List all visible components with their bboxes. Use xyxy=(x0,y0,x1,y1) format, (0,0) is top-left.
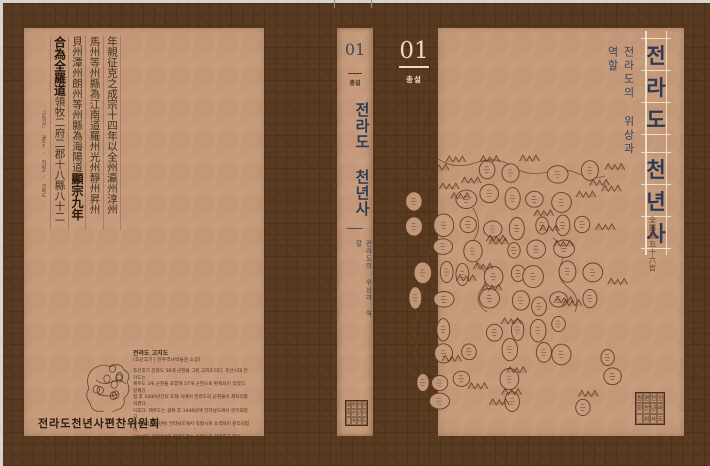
fold-mark xyxy=(371,0,372,8)
seal-char: 편 xyxy=(643,393,650,403)
front-subtitle: 전라도의 위상과 역할 xyxy=(612,46,636,182)
calligraphy-column: 合為全羅道領牧二府二郡十八縣八十二 xyxy=(50,36,68,230)
spine-volume-label: 총설 xyxy=(337,78,373,87)
seal-char: 년 xyxy=(650,403,657,413)
seal-char: 원 xyxy=(346,401,351,409)
seal-char: 라 xyxy=(657,403,664,413)
seal-char: 년 xyxy=(357,409,362,417)
seal-char: 전 xyxy=(657,393,664,403)
seal-char: 천 xyxy=(357,401,362,409)
seal-char: 원 xyxy=(636,393,643,403)
seal-char: 전 xyxy=(362,401,367,409)
spine-title: 전라도 천년사 xyxy=(337,94,373,224)
calligraphy-column: 馬州等州縣為江南道羅州光州靜州昇州 xyxy=(85,36,103,230)
committee-seal: 전라도천년사편찬위원회 xyxy=(635,392,665,425)
seal-char: 위 xyxy=(351,417,356,425)
fold-mark xyxy=(334,0,335,8)
seal-char: 회 xyxy=(346,409,351,417)
seal-char: 위 xyxy=(643,414,650,424)
antique-map-illustration xyxy=(403,148,650,435)
seal-char: 도 xyxy=(362,417,367,425)
ladder-rail-left xyxy=(645,31,647,255)
volume-block: 01 총설 xyxy=(396,38,432,85)
seal-char: 라 xyxy=(362,409,367,417)
seal-char xyxy=(346,417,351,425)
seal-char: 사 xyxy=(650,414,657,424)
seal-char: 찬 xyxy=(351,409,356,417)
seal-char: 회 xyxy=(636,403,643,413)
committee-seal-small: 전라도천년사편찬위원회 xyxy=(345,400,368,426)
volume-label: 총설 xyxy=(396,74,432,85)
spine-volume-number: 01 xyxy=(337,40,373,59)
seal-char: 편 xyxy=(351,401,356,409)
scan-edge-left xyxy=(0,0,3,466)
book-jacket-spread: 年親征克之成宗十四年以全州瀛州淳州馬州等州縣為江南道羅州光州靜州昇州貝州潭州朗州… xyxy=(0,0,710,466)
spine-divider-2 xyxy=(347,228,363,229)
classical-text-block: 年親征克之成宗十四年以全州瀛州淳州馬州等州縣為江南道羅州光州靜州昇州貝州潭州朗州… xyxy=(50,36,121,230)
ladder-rail-right xyxy=(666,31,668,255)
map-inscription: 全羅道五十六官 xyxy=(648,216,657,278)
volume-underline xyxy=(399,66,429,68)
publisher-name: 전라도천년사편찬위원회 xyxy=(38,415,160,431)
seal-char: 도 xyxy=(657,414,664,424)
volume-number: 01 xyxy=(396,38,432,64)
calligraphy-column: 年親征克之成宗十四年以全州瀛州淳州 xyxy=(103,36,122,230)
citation-text: 『고려사』 권57, 지리2, 전라도 xyxy=(41,108,46,218)
scan-edge-top xyxy=(0,0,710,3)
seal-char xyxy=(636,414,643,424)
old-map-thumbnail xyxy=(86,360,132,412)
seal-char: 찬 xyxy=(643,403,650,413)
calligraphy-column: 貝州潭州朗州等州縣為海陽道顯宗九年 xyxy=(68,36,86,230)
spine-divider xyxy=(348,73,362,74)
map-caption-heading: 전라도 고지도 xyxy=(133,350,251,357)
map-caption-source: (조선후기 | 전주역사박물관 소장) xyxy=(133,357,251,364)
seal-char: 천 xyxy=(650,393,657,403)
seal-char: 사 xyxy=(357,417,362,425)
spine-subtitle: 전라도의 위상과 역할 xyxy=(337,240,373,320)
spine-panel xyxy=(337,28,373,436)
